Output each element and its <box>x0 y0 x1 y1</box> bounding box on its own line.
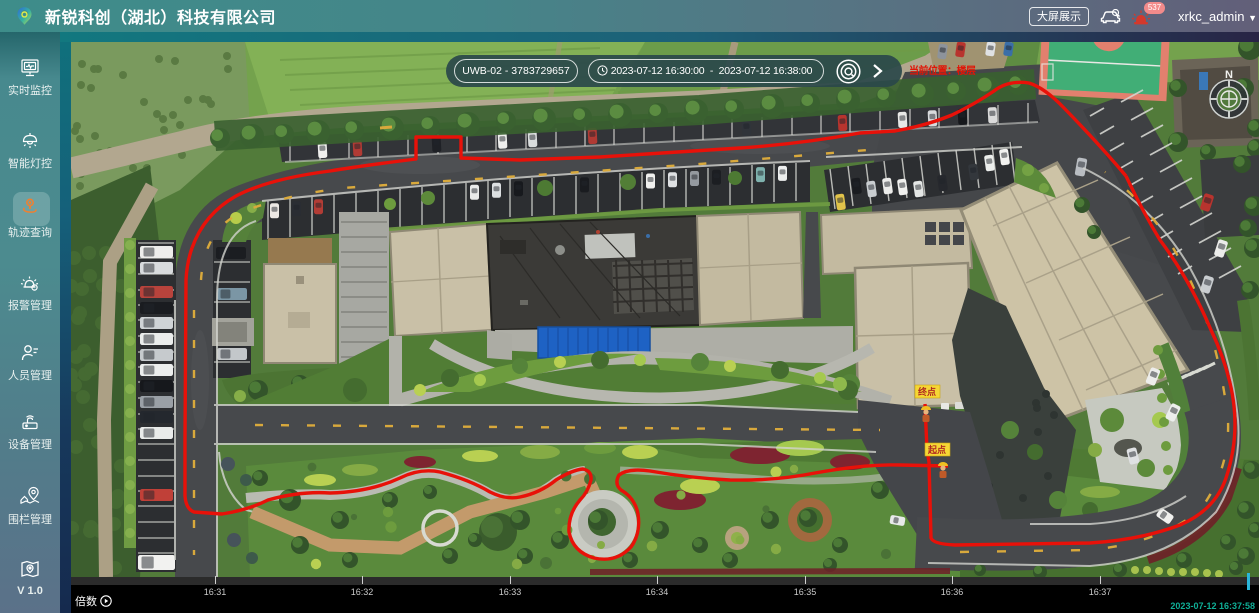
svg-text:起点: 起点 <box>927 444 946 455</box>
svg-text:终点: 终点 <box>917 386 936 397</box>
